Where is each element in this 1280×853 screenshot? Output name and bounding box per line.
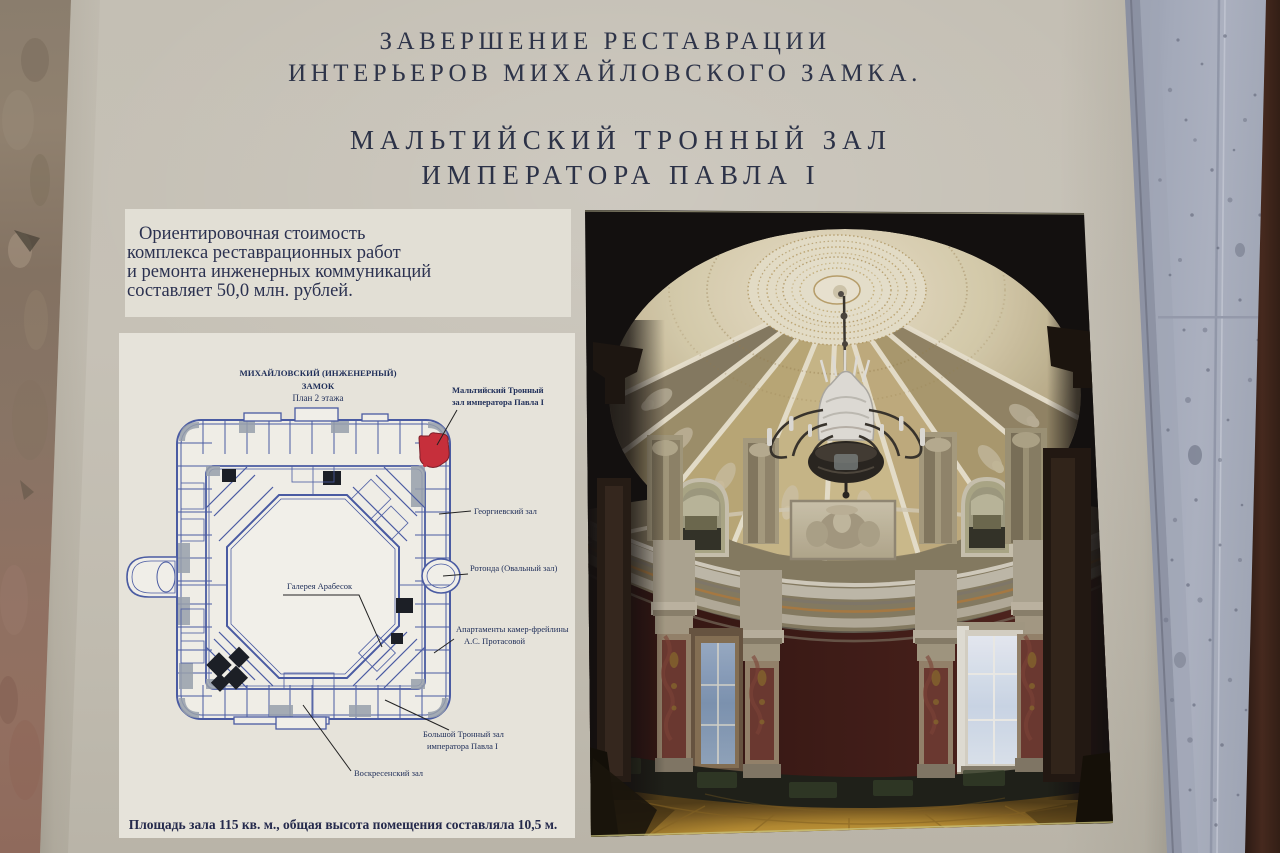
svg-text:МИХАЙЛОВСКИЙ (ИНЖЕНЕРНЫЙ): МИХАЙЛОВСКИЙ (ИНЖЕНЕРНЫЙ) — [239, 368, 396, 378]
svg-text:Галерея Арабесок: Галерея Арабесок — [287, 581, 353, 591]
svg-text:Большой Тронный зал: Большой Тронный зал — [423, 729, 505, 739]
svg-text:Мальтийский Тронный: Мальтийский Тронный — [452, 385, 544, 395]
svg-text:Георгиевский зал: Георгиевский зал — [474, 506, 538, 516]
svg-text:Площадь зала 115 кв. м., общая: Площадь зала 115 кв. м., общая высота по… — [129, 817, 558, 832]
svg-text:А.С. Протасовой: А.С. Протасовой — [464, 636, 526, 646]
svg-text:Ротонда (Овальный зал): Ротонда (Овальный зал) — [470, 563, 557, 573]
svg-text:зал императора Павла I: зал императора Павла I — [452, 397, 545, 407]
svg-text:План 2 этажа: План 2 этажа — [293, 393, 344, 403]
svg-text:ЗАМОК: ЗАМОК — [302, 381, 335, 391]
svg-text:императора Павла I: императора Павла I — [427, 741, 498, 751]
svg-text:Апартаменты камер-фрейлины: Апартаменты камер-фрейлины — [456, 624, 569, 634]
svg-text:Воскресенский зал: Воскресенский зал — [354, 768, 424, 778]
